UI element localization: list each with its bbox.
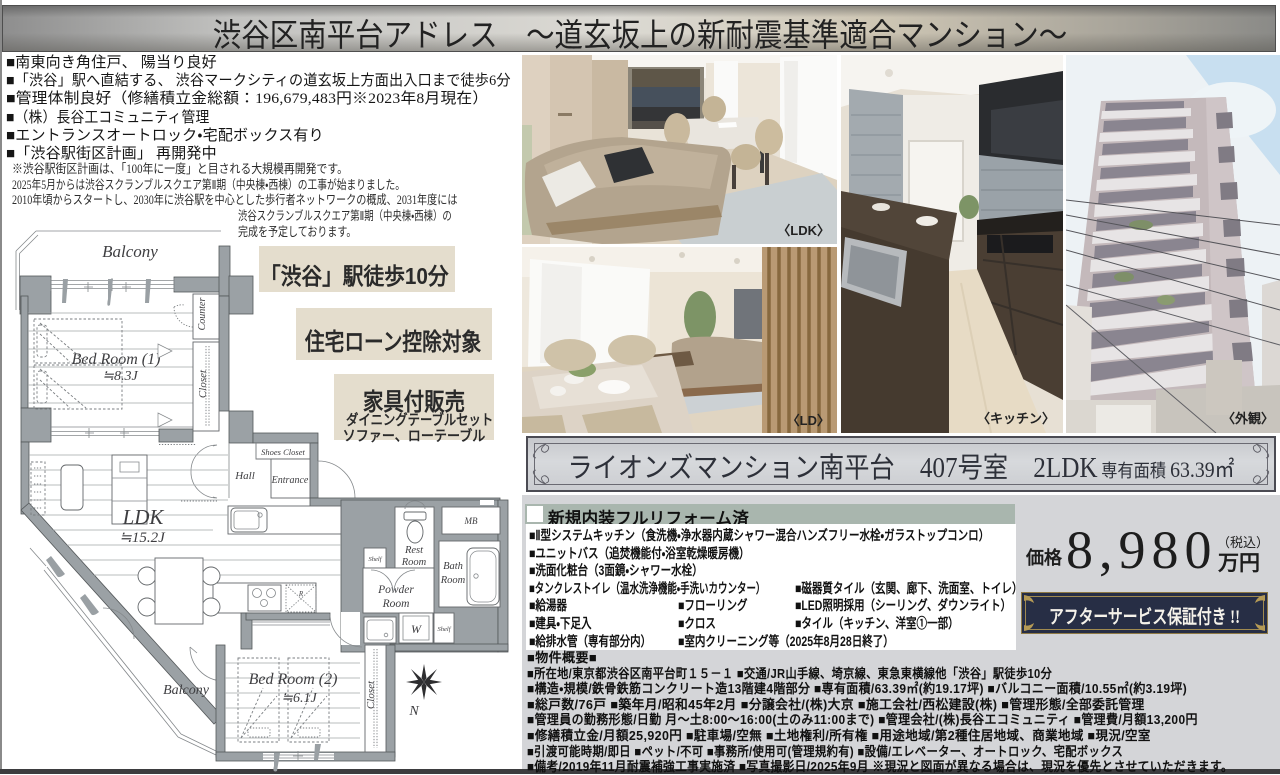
svg-text:〈外観〉: 〈外観〉 (1222, 411, 1274, 426)
svg-text:LDK: LDK (122, 505, 165, 529)
svg-text:N: N (408, 704, 419, 719)
svg-text:R: R (298, 590, 304, 598)
svg-text:Powder: Powder (377, 584, 414, 596)
svg-text:MB: MB (464, 516, 478, 526)
svg-text:Bed Room (1): Bed Room (1) (72, 351, 161, 368)
svg-text:Entrance: Entrance (271, 475, 309, 486)
svg-text:Balcony: Balcony (102, 242, 158, 261)
svg-text:≒8.3J: ≒8.3J (102, 369, 138, 384)
svg-text:Room: Room (401, 557, 427, 568)
svg-text:Shelf: Shelf (438, 626, 452, 633)
svg-text:〈LDK〉: 〈LDK〉 (777, 223, 830, 238)
svg-text:≒15.2J: ≒15.2J (119, 530, 166, 546)
svg-text:Bed Room (2): Bed Room (2) (249, 671, 338, 688)
svg-text:Closet: Closet (365, 680, 377, 709)
svg-text:≒6.1J: ≒6.1J (281, 691, 317, 706)
svg-text:Balcony: Balcony (163, 683, 210, 698)
svg-text:Room: Room (440, 575, 466, 586)
svg-text:Closet: Closet (197, 369, 209, 398)
svg-text:Hall: Hall (234, 470, 255, 482)
svg-text:Counter: Counter (197, 298, 208, 331)
svg-text:Room: Room (382, 598, 410, 610)
svg-text:Shelf: Shelf (369, 556, 383, 563)
svg-text:Rest: Rest (404, 545, 424, 556)
svg-text:Shoes Closet: Shoes Closet (261, 447, 305, 457)
svg-text:〈LD〉: 〈LD〉 (787, 413, 830, 428)
svg-text:W: W (411, 622, 422, 636)
svg-text:Bath: Bath (443, 561, 463, 572)
svg-text:〈キッチン〉: 〈キッチン〉 (977, 411, 1055, 426)
